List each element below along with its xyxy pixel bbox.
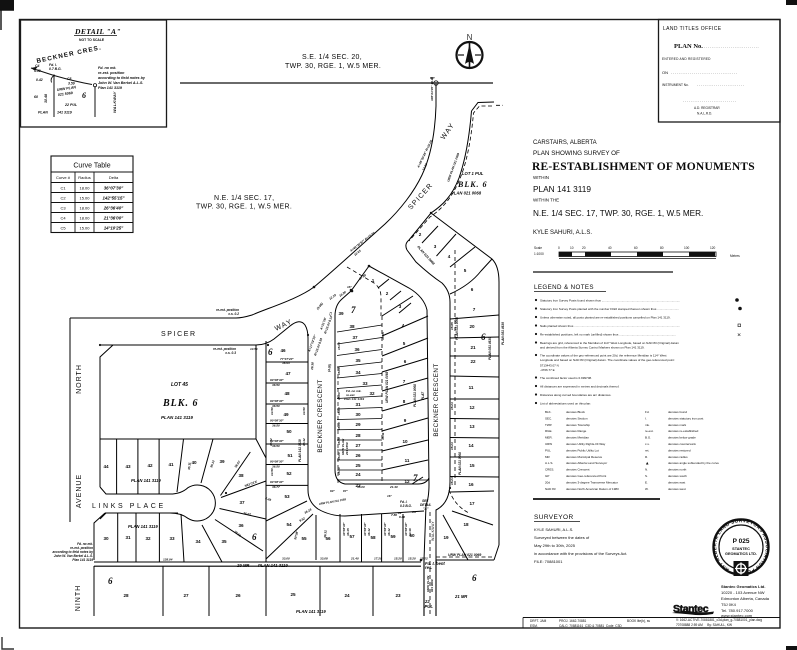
svg-text:denotes angle subtended by the: denotes angle subtended by the curve [668, 461, 719, 465]
svg-text:26°36'40": 26°36'40" [103, 206, 124, 211]
svg-text:V: 1662-ACTIVE-70881881_c3d-pl: V: 1662-ACTIVE-70881881_c3d-plan_g-70881… [676, 618, 762, 622]
svg-text:BLK. 6: BLK. 6 [457, 180, 488, 189]
svg-text:ENTERED AND REGISTERED: ENTERED AND REGISTERED [662, 57, 711, 61]
svg-text:25: 25 [355, 463, 361, 468]
svg-text:3: 3 [399, 304, 402, 309]
svg-text:S.: S. [645, 474, 648, 478]
svg-text:51: 51 [287, 453, 293, 458]
svg-text:NORTH: NORTH [76, 364, 83, 394]
svg-text:Bearings are grid, referenced: Bearings are grid, referenced to the Mer… [540, 341, 680, 345]
svg-text:0.7 B.G.: 0.7 B.G. [49, 67, 62, 71]
svg-text:denotes north: denotes north [668, 468, 687, 472]
svg-text:28: 28 [123, 593, 129, 598]
svg-text:15.00: 15.00 [337, 422, 341, 430]
svg-text:5: 5 [464, 268, 467, 273]
svg-text:Curve #: Curve # [56, 175, 71, 180]
svg-text:denotes Block: denotes Block [566, 410, 585, 414]
svg-text:36.77: 36.77 [272, 485, 280, 489]
svg-text:5713443.07 N: 5713443.07 N [540, 364, 559, 368]
svg-text:17: 17 [469, 501, 475, 506]
svg-text:39: 39 [219, 459, 225, 464]
svg-text:B.G.: B.G. [645, 436, 651, 440]
svg-text:22: 22 [470, 359, 476, 364]
svg-text:Plan 141 3119: Plan 141 3119 [72, 558, 93, 562]
svg-text:15: 15 [469, 463, 475, 468]
svg-text:DETAIL "A": DETAIL "A" [74, 27, 121, 36]
svg-text:6: 6 [471, 287, 474, 292]
svg-text:Statutory Iron Survey Posts pl: Statutory Iron Survey Posts planted with… [540, 307, 679, 311]
svg-text:PLAN 021 0068: PLAN 021 0068 [458, 452, 462, 475]
svg-text:Edmonton Alberta, Canada: Edmonton Alberta, Canada [721, 596, 770, 601]
svg-text:18.00: 18.00 [79, 206, 90, 211]
svg-text:denotes east: denotes east [668, 480, 685, 484]
svg-text:The combined factor used is 0.: The combined factor used is 0.999708. [540, 376, 592, 380]
svg-text:25: 25 [290, 592, 296, 597]
svg-text:8.06: 8.06 [399, 515, 405, 519]
svg-text:128.04: 128.04 [163, 558, 173, 562]
svg-text:70708888 2:59 AM By: SAHUL: 70708888 2:59 AM By: SAHULL, KW [676, 623, 732, 627]
svg-text:33: 33 [362, 381, 368, 386]
svg-text:18: 18 [463, 522, 469, 527]
svg-text:denotes 3-degree Transverse Me: denotes 3-degree Transverse Mercator [566, 480, 618, 484]
svg-text:PLAN 141 3119: PLAN 141 3119 [128, 524, 158, 529]
svg-text:6: 6 [108, 576, 113, 586]
svg-text:T5J 0K4: T5J 0K4 [721, 602, 737, 607]
svg-text:PROJ. 1662-70881: PROJ. 1662-70881 [559, 619, 587, 623]
svg-text:NINTH: NINTH [75, 585, 82, 611]
svg-text:C4: C4 [35, 64, 39, 68]
svg-text:TWP.: TWP. [545, 423, 552, 427]
svg-text:P 025: P 025 [733, 538, 750, 545]
svg-text:29: 29 [355, 422, 361, 427]
svg-text:87°: 87° [343, 489, 348, 493]
svg-text:PLAT: PLAT [421, 391, 425, 400]
svg-text:57: 57 [349, 534, 355, 539]
svg-text:27: 27 [183, 593, 189, 598]
svg-text:20: 20 [582, 246, 586, 250]
svg-text:21°36'00": 21°36'00" [103, 216, 124, 221]
svg-text:90°08'30": 90°08'30" [270, 460, 284, 464]
svg-text:39: 39 [338, 311, 344, 316]
svg-text:35: 35 [221, 539, 227, 544]
svg-text:49: 49 [283, 412, 289, 417]
svg-text:Metres: Metres [730, 254, 740, 258]
svg-text:LAND TITLES OFFICE: LAND TITLES OFFICE [663, 26, 722, 32]
svg-text:LEGEND & NOTES: LEGEND & NOTES [534, 284, 594, 291]
svg-text:33.08: 33.08 [320, 557, 328, 561]
svg-text:7: 7 [413, 473, 418, 483]
svg-text:GP: GP [545, 474, 549, 478]
svg-text:7: 7 [473, 307, 476, 312]
svg-text:denotes Municipal Reserve: denotes Municipal Reserve [566, 455, 603, 459]
svg-text:PLAN 021 0068: PLAN 021 0068 [413, 384, 417, 407]
svg-text:36.94: 36.94 [282, 361, 290, 365]
svg-text:59: 59 [390, 534, 396, 539]
svg-text:60: 60 [634, 246, 638, 250]
svg-text:36.50: 36.50 [272, 424, 280, 428]
svg-text:5: 5 [403, 341, 406, 346]
svg-text:13: 13 [469, 424, 475, 429]
svg-text:8: 8 [403, 399, 406, 404]
svg-text:58: 58 [370, 535, 376, 540]
svg-text:.............................: ............................. [704, 44, 759, 49]
svg-text:denotes south: denotes south [668, 474, 687, 478]
svg-text:21.40: 21.40 [350, 557, 359, 561]
svg-text:17.20: 17.20 [374, 557, 382, 561]
svg-text:Surveyed between the dates of: Surveyed between the dates of [534, 535, 590, 540]
svg-text:14.50: 14.50 [270, 468, 274, 476]
svg-text:18.00: 18.00 [79, 186, 90, 191]
svg-text:32: 32 [369, 391, 375, 396]
svg-text:I.: I. [645, 416, 647, 420]
svg-text:6: 6 [404, 359, 407, 364]
svg-text:C4: C4 [60, 216, 66, 221]
svg-text:A.L.S.: A.L.S. [545, 461, 553, 465]
svg-text:33.00: 33.00 [282, 557, 290, 561]
svg-text:SPICER: SPICER [161, 331, 197, 338]
svg-text:Curve Table: Curve Table [73, 163, 110, 170]
svg-text:36.15: 36.15 [346, 528, 350, 536]
svg-text:3: 3 [434, 244, 437, 249]
svg-text:denotes mark: denotes mark [668, 423, 687, 427]
svg-text:denotes Alberta Land Surveyor: denotes Alberta Land Surveyor [566, 461, 607, 465]
svg-text:denotes Range: denotes Range [566, 429, 587, 433]
svg-text:"A": "A" [423, 507, 429, 511]
svg-text:RE-ESTABLISHMENT OF MONUMENTS: RE-ESTABLISHMENT OF MONUMENTS [532, 161, 755, 173]
svg-text:N.A.L.R.D.: N.A.L.R.D. [697, 112, 712, 116]
svg-text:14.50: 14.50 [270, 407, 274, 415]
svg-text:34: 34 [195, 539, 201, 544]
svg-text:✕: ✕ [737, 333, 741, 339]
svg-text:35.00: 35.00 [357, 485, 365, 489]
svg-text:..............................: ................................... [671, 70, 738, 75]
svg-text:LOT 1 PUL: LOT 1 PUL [462, 171, 484, 176]
svg-text:2: 2 [419, 232, 422, 237]
svg-text:PUL: PUL [425, 604, 434, 609]
svg-text:(4.05): (4.05) [327, 364, 332, 372]
svg-text:15.00: 15.00 [337, 407, 341, 415]
svg-text:7.86: 7.86 [391, 513, 397, 517]
svg-text:14.51: 14.51 [250, 347, 258, 351]
svg-text:14°10'25": 14°10'25" [104, 226, 124, 231]
svg-text:12: 12 [404, 479, 410, 484]
svg-text:9: 9 [404, 418, 407, 423]
svg-text:res.: res. [425, 565, 432, 570]
svg-text:20: 20 [469, 324, 475, 329]
svg-text:Re-established positions, left: Re-established positions, left no mark (… [540, 333, 676, 337]
svg-text:7: 7 [403, 379, 406, 384]
svg-text:c.s. 0.2: c.s. 0.2 [228, 312, 239, 316]
svg-text:May 29th to 30th, 2025: May 29th to 30th, 2025 [534, 543, 576, 548]
svg-text:021 0069: 021 0069 [430, 579, 434, 592]
svg-text:Nails planted shown thus .....: Nails planted shown thus ...............… [540, 324, 680, 328]
svg-text:C2: C2 [60, 196, 66, 201]
svg-text:47: 47 [285, 371, 291, 376]
svg-text:............................: ............................ [683, 98, 737, 103]
svg-text:18.00: 18.00 [79, 216, 90, 221]
svg-text:36.31: 36.31 [323, 530, 328, 538]
svg-text:WALKWAY: WALKWAY [113, 91, 117, 113]
svg-text:35.11: 35.11 [381, 432, 385, 440]
svg-text:7: 7 [351, 305, 356, 315]
svg-text:BLK. 6: BLK. 6 [162, 398, 198, 409]
svg-text:DRFT. JAM: DRFT. JAM [530, 619, 547, 623]
svg-text:re-est. position: re-est. position [98, 71, 125, 75]
svg-text:31: 31 [125, 535, 131, 540]
svg-text:24: 24 [344, 593, 350, 598]
svg-text:34: 34 [355, 370, 361, 375]
svg-text:PLAN 141 3119: PLAN 141 3119 [296, 609, 326, 614]
svg-text:PLAN: PLAN [38, 111, 48, 115]
svg-text:PLAN SHOWING SURVEY OF: PLAN SHOWING SURVEY OF [533, 150, 620, 157]
svg-text:6: 6 [268, 347, 273, 357]
svg-text:LINKS PLACE: LINKS PLACE [92, 503, 166, 510]
svg-text:36.50: 36.50 [272, 465, 280, 469]
svg-text:43: 43 [125, 464, 131, 469]
svg-text:32: 32 [145, 536, 151, 541]
svg-text:15.00: 15.00 [337, 392, 341, 400]
svg-text:38: 38 [238, 473, 244, 478]
svg-text:30.48: 30.48 [44, 94, 48, 103]
svg-text:BLK.: BLK. [545, 410, 552, 414]
svg-text:12: 12 [469, 405, 475, 410]
svg-text:denotes radius: denotes radius [668, 455, 688, 459]
svg-text:ret.: ret. [645, 448, 650, 452]
svg-text:C3: C3 [60, 206, 66, 211]
svg-text:31: 31 [355, 402, 361, 407]
svg-text:15.24: 15.24 [450, 477, 454, 485]
svg-text:denotes Meridian: denotes Meridian [566, 436, 589, 440]
svg-text:A.D. REGISTRAR: A.D. REGISTRAR [694, 106, 720, 110]
svg-text:36.50: 36.50 [272, 444, 280, 448]
svg-text:CARSTAIRS, ALBERTA: CARSTAIRS, ALBERTA [533, 140, 597, 146]
svg-text:24: 24 [355, 472, 361, 477]
svg-text:and derived from the Alberta S: and derived from the Alberta Survey Cont… [540, 346, 645, 350]
svg-text:WITHIN THE: WITHIN THE [533, 198, 559, 203]
svg-text:4: 4 [448, 254, 451, 259]
svg-text:URW PLAN 021 0069: URW PLAN 021 0069 [385, 371, 389, 403]
svg-text:LOT 45: LOT 45 [171, 382, 188, 388]
svg-text:30: 30 [103, 536, 109, 541]
svg-text:STANTEC: STANTEC [732, 547, 750, 551]
svg-text:GEOMATICS LTD.: GEOMATICS LTD. [725, 552, 757, 556]
svg-text:denotes found: denotes found [668, 410, 687, 414]
svg-text:26: 26 [355, 453, 361, 458]
svg-text:W.: W. [645, 487, 649, 491]
svg-text:BECKNER CRESCENT: BECKNER CRESCENT [317, 379, 324, 452]
svg-text:60: 60 [34, 95, 38, 99]
svg-text:Longitude and based on NAD 83: Longitude and based on NAD 83 (Original)… [540, 358, 675, 362]
svg-text:PLAN 141 3119: PLAN 141 3119 [161, 415, 193, 420]
svg-text:C5: C5 [60, 226, 66, 231]
svg-text:90°08'30": 90°08'30" [270, 419, 284, 423]
svg-text:in accordance with the provisi: in accordance with the provisions of the… [534, 551, 627, 556]
svg-text:PLAN No.: PLAN No. [674, 43, 703, 50]
svg-text:15.00: 15.00 [79, 226, 90, 231]
svg-text:21 MR: 21 MR [454, 594, 467, 599]
svg-text:RGE.: RGE. [545, 429, 553, 433]
svg-text:141 3119: 141 3119 [57, 111, 72, 115]
svg-text:denotes Public Utility Lot: denotes Public Utility Lot [566, 448, 599, 452]
svg-text:16.42: 16.42 [302, 438, 306, 446]
svg-text:Fd. no mk.: Fd. no mk. [98, 66, 116, 70]
svg-text:55: 55 [301, 536, 307, 541]
svg-text:15.00: 15.00 [337, 437, 341, 445]
svg-text:denotes countersunk: denotes countersunk [668, 442, 696, 446]
svg-text:16: 16 [468, 482, 474, 487]
svg-text:denotes Utility Rights-Of-Way: denotes Utility Rights-Of-Way [566, 442, 606, 446]
svg-text:C6: C6 [412, 510, 416, 514]
svg-text:Delta: Delta [109, 175, 119, 180]
svg-text:BECKNER CRESCENT: BECKNER CRESCENT [433, 363, 440, 436]
svg-text:14: 14 [468, 443, 474, 448]
svg-text:120: 120 [710, 246, 716, 250]
svg-text:N.: N. [645, 468, 648, 472]
svg-text:36: 36 [354, 347, 360, 352]
svg-text:denotes statutory iron post: denotes statutory iron post [668, 416, 704, 420]
svg-text:c.s.: c.s. [645, 442, 650, 446]
svg-text:20d: 20d [545, 480, 550, 484]
svg-text:0.42: 0.42 [36, 78, 43, 82]
svg-text:48: 48 [284, 391, 290, 396]
svg-text:18°: 18° [347, 285, 352, 289]
svg-text:denotes west: denotes west [668, 487, 686, 491]
svg-text:2: 2 [386, 291, 389, 296]
svg-text:▲: ▲ [645, 461, 649, 466]
svg-text:15.00: 15.00 [79, 196, 90, 201]
svg-text:15.24: 15.24 [450, 402, 454, 410]
svg-text:15.00: 15.00 [337, 452, 341, 460]
svg-text:38: 38 [349, 324, 355, 329]
svg-text:16.42: 16.42 [269, 438, 273, 446]
svg-text:142°55'15": 142°55'15" [103, 196, 126, 201]
svg-text:denotes Section: denotes Section [566, 416, 588, 420]
svg-text:PLAN 081 4639: PLAN 081 4639 [488, 337, 492, 360]
svg-text:Fd.: Fd. [645, 410, 650, 414]
svg-text:1:1000: 1:1000 [534, 252, 544, 256]
svg-text:36.50: 36.50 [272, 383, 280, 387]
svg-text:23: 23 [395, 593, 401, 598]
svg-text:6: 6 [82, 91, 86, 100]
svg-text:15.00: 15.00 [337, 467, 341, 475]
svg-text:22 PUL: 22 PUL [64, 103, 77, 107]
svg-text:36: 36 [238, 523, 244, 528]
svg-text:28: 28 [355, 433, 361, 438]
svg-text:14.36: 14.36 [408, 528, 412, 536]
svg-text:PLAN 081 4639: PLAN 081 4639 [501, 322, 505, 345]
svg-text:WALKWAY: WALKWAY [431, 521, 435, 541]
svg-text:ON: ON [662, 70, 668, 75]
svg-text:11: 11 [469, 385, 474, 390]
svg-text:WITHIN: WITHIN [533, 175, 549, 180]
svg-text:80: 80 [660, 246, 664, 250]
svg-text:53: 53 [284, 494, 290, 499]
svg-text:R.: R. [645, 455, 648, 459]
svg-text:35: 35 [355, 358, 361, 363]
svg-text:4: 4 [402, 323, 405, 328]
svg-text:15.24: 15.24 [450, 442, 454, 450]
svg-text:N.E. 1/4 SEC. 17, TWP. 30, RGE: N.E. 1/4 SEC. 17, TWP. 30, RGE. 1, W.5 M… [533, 209, 703, 218]
svg-text:4.59: 4.59 [33, 69, 41, 73]
svg-text:John W. Van Berkel A.L.S.: John W. Van Berkel A.L.S. [98, 81, 143, 85]
svg-text:90°08'30": 90°08'30" [270, 378, 284, 382]
svg-text:6: 6 [481, 332, 486, 342]
svg-text:16.30: 16.30 [310, 362, 315, 370]
svg-text:denotes Geo-referenced Point: denotes Geo-referenced Point [566, 474, 606, 478]
svg-text:Scale: Scale [534, 246, 542, 250]
svg-text:TWP. 30, RGE. 1, W.5 MER.: TWP. 30, RGE. 1, W.5 MER. [196, 204, 292, 211]
svg-text:The coordinate values of the g: The coordinate values of the geo-referen… [540, 354, 667, 358]
svg-text:denotes restored: denotes restored [668, 448, 691, 452]
svg-text:19: 19 [443, 535, 449, 540]
svg-text:BOOK lite(b), ss: BOOK lite(b), ss [627, 619, 650, 623]
svg-text:15.20: 15.20 [394, 557, 402, 561]
svg-text:11: 11 [405, 458, 410, 463]
svg-text:15.00: 15.00 [337, 367, 341, 375]
svg-text:ESM.: ESM. [530, 624, 538, 628]
svg-text:denotes below grade: denotes below grade [668, 436, 696, 440]
svg-text:54: 54 [286, 522, 292, 527]
svg-text:All distances are expressed in: All distances are expressed in metres an… [540, 385, 620, 389]
svg-text:52: 52 [286, 471, 292, 476]
svg-text:35.11: 35.11 [187, 462, 192, 470]
svg-text:denotes North American Datum o: denotes North American Datum of 1983 [566, 487, 619, 491]
svg-text:C5: C5 [67, 77, 71, 81]
svg-text:40: 40 [608, 246, 612, 250]
svg-text:0.3 B.G.: 0.3 B.G. [400, 504, 412, 508]
svg-text:21: 21 [470, 345, 476, 350]
svg-text:FILE: 70881001: FILE: 70881001 [534, 559, 563, 564]
svg-text:27: 27 [355, 443, 361, 448]
svg-text:CALC: 70881161_C3D & 70881_Cod: CALC: 70881161_C3D & 70881_Code_C3D [559, 624, 622, 628]
svg-text:90°08'30": 90°08'30" [270, 480, 284, 484]
svg-text:according to field notes by: according to field notes by [98, 76, 146, 80]
svg-text:44: 44 [103, 464, 109, 469]
svg-text:90°08'30": 90°08'30" [270, 399, 284, 403]
svg-text:List of abbreviations used on: List of abbreviations used on this plan: [540, 402, 591, 406]
svg-text:denotes Township: denotes Township [566, 423, 590, 427]
svg-text:Stantec Geomatics Ltd.: Stantec Geomatics Ltd. [721, 584, 765, 589]
svg-text:15.20: 15.20 [408, 557, 416, 561]
svg-text:Plan 141 3119: Plan 141 3119 [344, 397, 364, 401]
svg-text:33: 33 [169, 536, 175, 541]
svg-text:50: 50 [286, 429, 292, 434]
svg-text:URW: URW [545, 442, 552, 446]
svg-text:26: 26 [235, 593, 241, 598]
svg-text:37: 37 [239, 500, 245, 505]
svg-text:INSTRUMENT No.: INSTRUMENT No. [662, 83, 689, 87]
svg-text:36°07'30": 36°07'30" [104, 186, 124, 191]
svg-text:0: 0 [558, 246, 560, 250]
svg-text:Statutory Iron Survey Posts fo: Statutory Iron Survey Posts found shown … [540, 299, 680, 303]
svg-text:6: 6 [252, 532, 257, 542]
svg-text:MER.: MER. [545, 436, 553, 440]
svg-text:KYLE SAHURI, A.L.S.: KYLE SAHURI, A.L.S. [533, 230, 592, 236]
svg-text:1: 1 [372, 278, 375, 283]
svg-text:41: 41 [168, 462, 174, 467]
svg-text:10: 10 [402, 439, 408, 444]
svg-text:SURVEYOR: SURVEYOR [534, 514, 574, 521]
svg-text:-4766.77 E: -4766.77 E [540, 368, 555, 372]
svg-text:N.E. 1/4 SEC. 17,: N.E. 1/4 SEC. 17, [214, 195, 274, 202]
svg-text:C1: C1 [60, 186, 66, 191]
svg-text:.........................: ......................... [697, 82, 745, 87]
svg-text:c.s. 0.3: c.s. 0.3 [225, 351, 236, 355]
svg-text:S.E. 1/4 SEC. 20,: S.E. 1/4 SEC. 20, [302, 54, 362, 61]
svg-text:KYLE SAHURI, A.L.S.: KYLE SAHURI, A.L.S. [534, 527, 573, 532]
svg-text:36.12: 36.12 [367, 528, 371, 536]
svg-text:E.: E. [645, 480, 648, 484]
